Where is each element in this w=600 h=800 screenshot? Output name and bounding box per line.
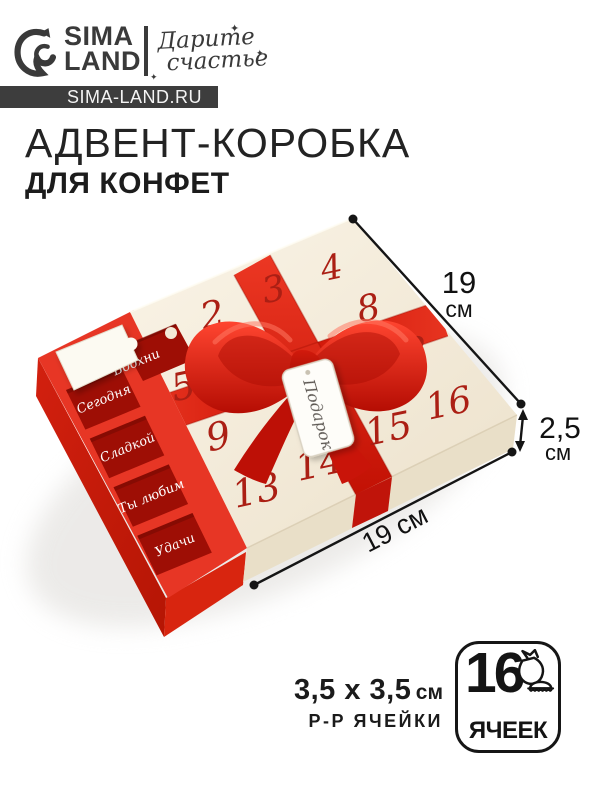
candy-icon [511, 649, 555, 701]
cell-size-value: 3,5 х 3,5 [294, 674, 411, 706]
cell-size-info: 3,5 х 3,5 см Р-Р ЯЧЕЙКИ [294, 674, 443, 732]
cell-size-caption: Р-Р ЯЧЕЙКИ [294, 711, 443, 732]
dimension-side-value: 19 [442, 265, 476, 300]
cell-count-caption: ЯЧЕЕК [458, 717, 558, 745]
dimension-side-unit: см [445, 296, 472, 322]
window-tab-notch [165, 327, 177, 339]
product-card: SIMA LAND Дарите счастье ✦ ✦ ✦ SIMA-LAND… [0, 0, 600, 800]
dimension-height-unit: см [545, 440, 571, 465]
cell-count-badge: 16 ЯЧЕЕК [455, 641, 561, 753]
cell-size-unit: см [416, 681, 443, 704]
